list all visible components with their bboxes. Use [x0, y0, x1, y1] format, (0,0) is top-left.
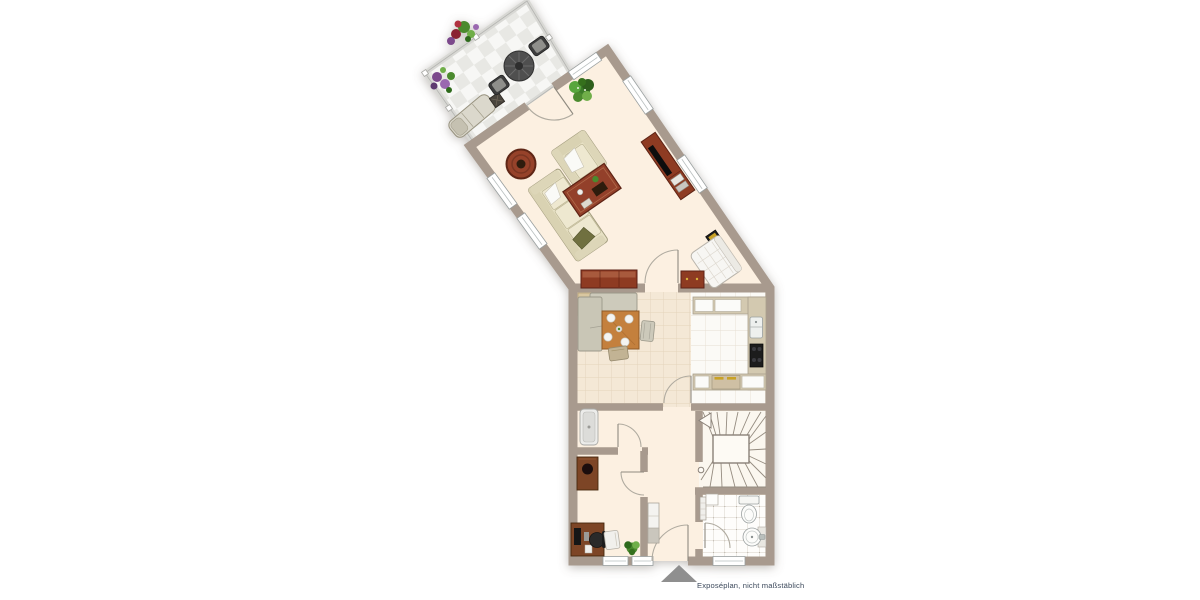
stair-landing: [713, 435, 749, 463]
sideboard: [581, 270, 637, 288]
hall-cabinet: [577, 457, 598, 490]
dining-chair: [608, 346, 629, 362]
oven: [712, 376, 740, 390]
floorplan-svg: Exposéplan, nicht maßstäblich: [0, 0, 1200, 600]
plan-caption: Exposéplan, nicht maßstäblich: [697, 581, 804, 590]
terrace-table: [504, 51, 534, 81]
window: [713, 557, 745, 566]
hallway: [648, 503, 659, 543]
dining-chair: [640, 320, 655, 341]
washbasin: [743, 527, 766, 547]
round-rug: [507, 150, 536, 179]
dining-table: [602, 311, 639, 349]
corner-bench: [578, 297, 602, 351]
radiator: [700, 497, 706, 520]
entrance-arrow: [661, 565, 697, 582]
wardrobe: [648, 503, 659, 543]
kitchen-sink: [750, 317, 763, 338]
building: [422, 1, 770, 566]
window: [632, 557, 653, 566]
window: [603, 557, 628, 566]
lowboard: [681, 271, 704, 288]
cooktop: [750, 344, 763, 367]
visitor-chair: [604, 530, 620, 550]
stair-pivot-dot: [698, 467, 704, 473]
floorplan-canvas: Exposéplan, nicht maßstäblich: [0, 0, 1200, 600]
wc: [580, 409, 598, 445]
shower: [580, 409, 598, 445]
bath-cabinet: [706, 494, 718, 505]
